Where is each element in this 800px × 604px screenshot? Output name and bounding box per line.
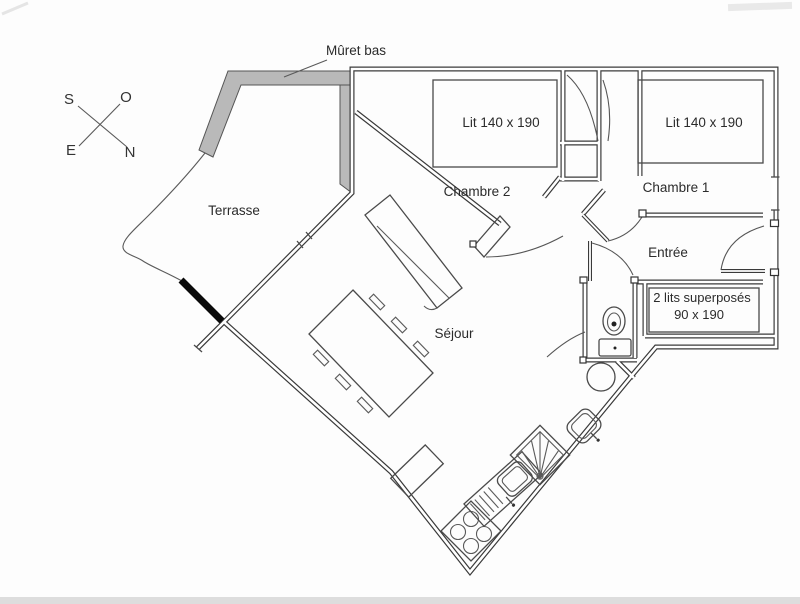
- toilet: [599, 307, 631, 356]
- chambre1-label: Chambre 1: [643, 180, 710, 195]
- compass-ouest: O: [120, 89, 132, 106]
- bunks-label-line2: 90 x 190: [674, 307, 724, 322]
- chambre2-label: Chambre 2: [444, 184, 511, 199]
- floor-plan-page: S O E N Mûret bas Terrasse Lit 140 x 190…: [0, 0, 800, 604]
- terrasse-screen: [181, 280, 222, 321]
- entree-label: Entrée: [648, 245, 688, 260]
- chambre2-door: [470, 216, 563, 257]
- compass-nord: N: [125, 144, 136, 161]
- compass-est: E: [66, 142, 76, 159]
- muret-bas-label: Mûret bas: [326, 43, 386, 58]
- closet-doors: [567, 75, 610, 141]
- bed2-label: Lit 140 x 190: [462, 115, 539, 130]
- dining-table: [309, 290, 433, 417]
- sejour-label: Séjour: [434, 326, 474, 341]
- wc-door: [580, 241, 638, 283]
- terrasse-open-edge: [123, 153, 205, 281]
- compass: S O E N: [64, 89, 135, 161]
- floor-plan-drawing: S O E N Mûret bas Terrasse Lit 140 x 190…: [0, 0, 800, 604]
- kitchen-cabinet: [391, 445, 444, 497]
- bathroom-door: [547, 332, 586, 363]
- chambre1-door: [583, 210, 646, 241]
- bunks-label-line1: 2 lits superposés: [653, 290, 751, 305]
- muret-bas-wall: [199, 71, 352, 193]
- entrance-door: [721, 220, 779, 276]
- sofa: [365, 195, 462, 310]
- compass-south: S: [64, 91, 74, 108]
- terrasse-label: Terrasse: [208, 203, 260, 218]
- bed1-label: Lit 140 x 190: [665, 115, 742, 130]
- water-heater: [587, 363, 615, 391]
